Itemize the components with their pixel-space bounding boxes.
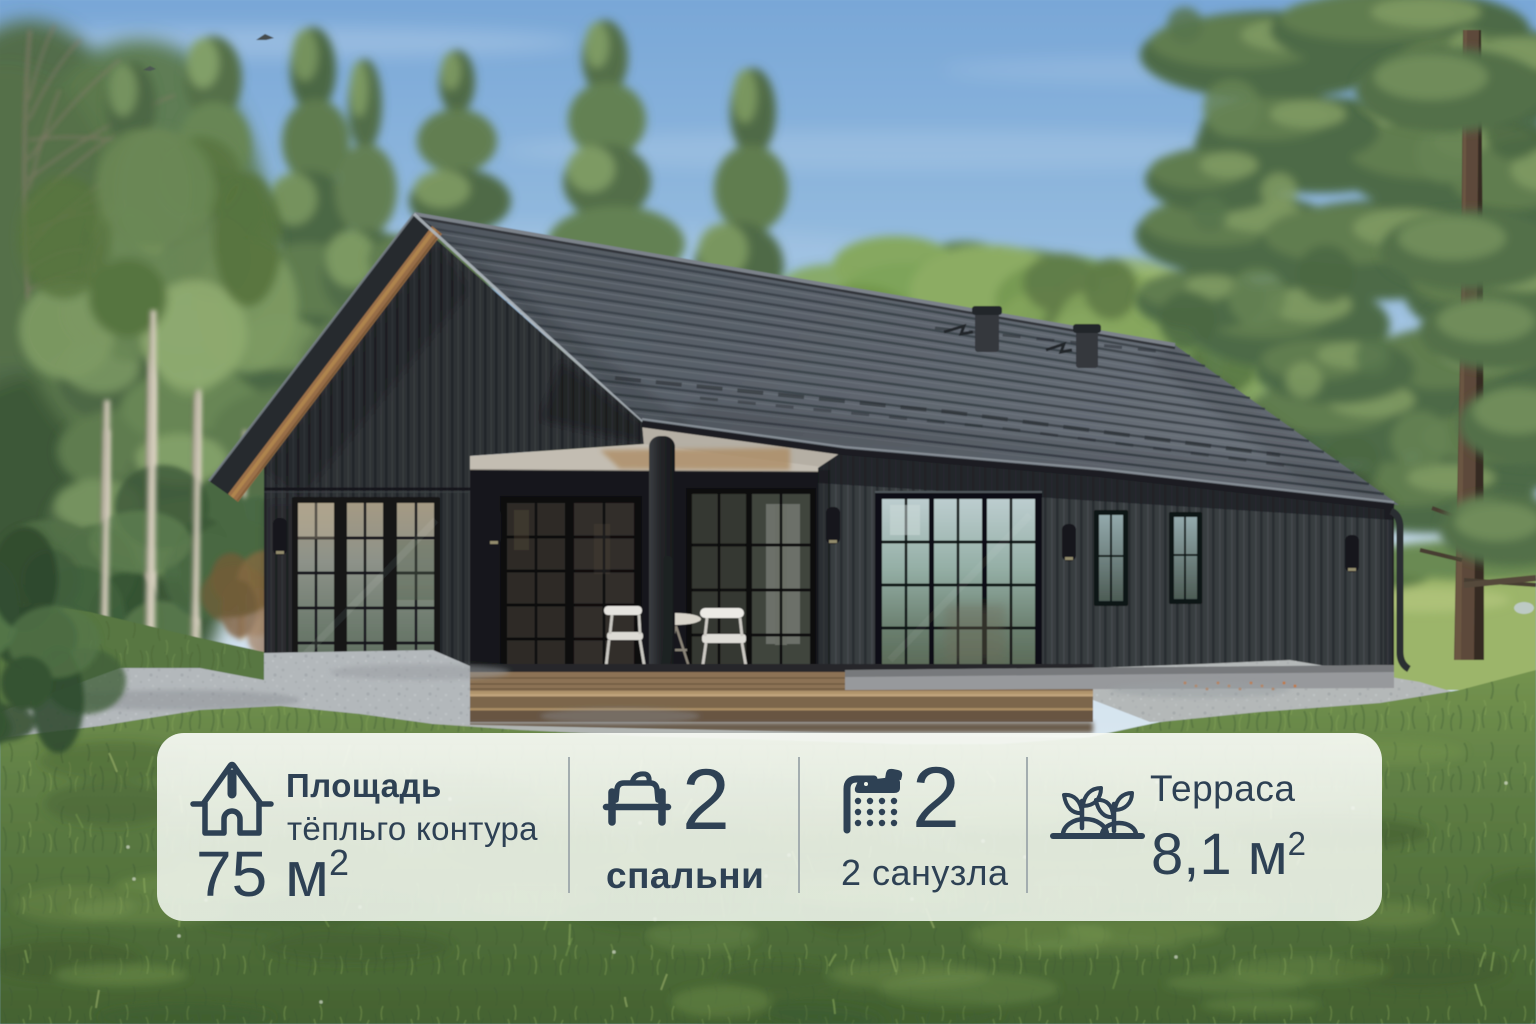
svg-text:Площадь: Площадь <box>286 767 442 804</box>
svg-text:Терраса: Терраса <box>1150 768 1295 809</box>
svg-text:2 санузла: 2 санузла <box>841 852 1009 893</box>
svg-text:75 м2: 75 м2 <box>196 838 349 910</box>
svg-text:спальни: спальни <box>606 855 764 896</box>
svg-text:8,1 м2: 8,1 м2 <box>1151 822 1306 887</box>
svg-text:2: 2 <box>912 750 960 846</box>
svg-text:2: 2 <box>682 752 730 848</box>
